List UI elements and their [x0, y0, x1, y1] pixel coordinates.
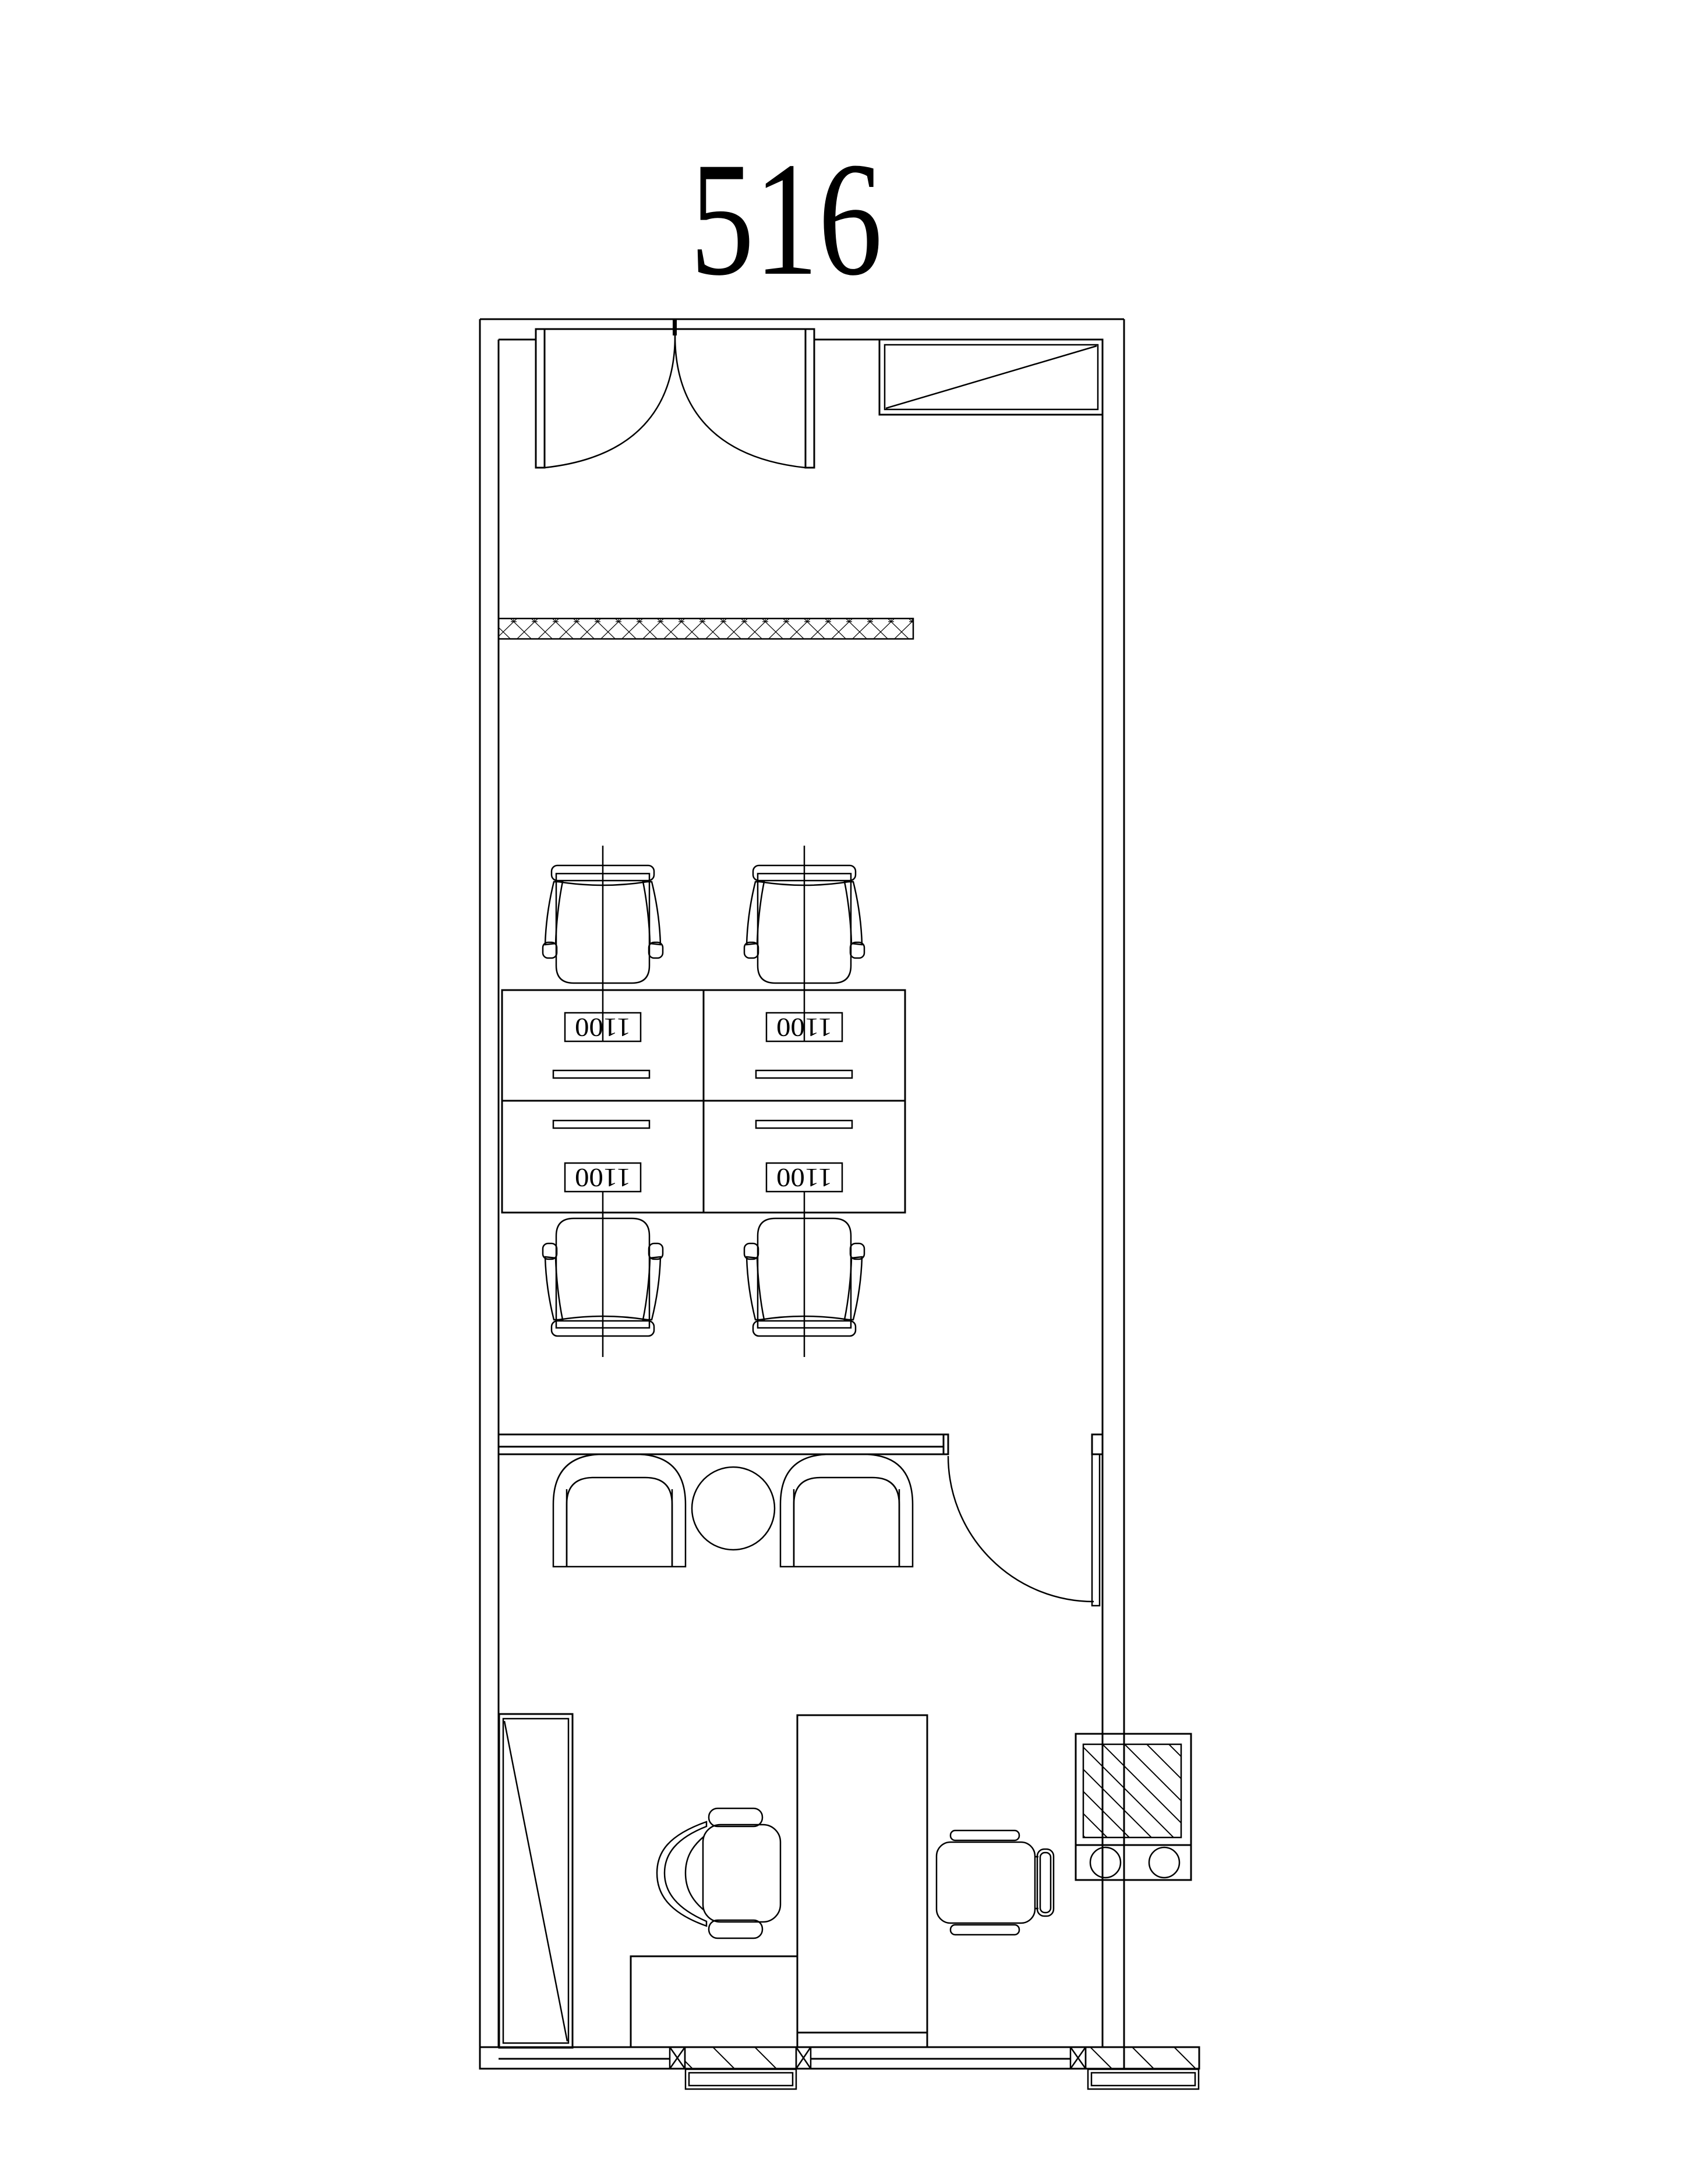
- wall-cabinet: [879, 340, 1103, 415]
- equipment-unit: [1076, 1734, 1191, 1880]
- door-swing-arc-icon: [948, 1456, 1094, 1602]
- partition-jamb-left: [944, 1434, 948, 1454]
- page-title: 516: [690, 128, 882, 309]
- storage-cabinet: [499, 1714, 573, 2048]
- door-leaf-swing-left-icon: [545, 335, 675, 468]
- partition-wall: [499, 1434, 1103, 1454]
- room-walls: [480, 319, 1124, 2069]
- sink-circle-icon: [1090, 1847, 1121, 1878]
- desk-label-text: 1100: [776, 1013, 832, 1042]
- partition-jamb-right: [1092, 1434, 1103, 1454]
- swivel-chair-icon: [657, 1808, 780, 1938]
- partition-door: [948, 1454, 1100, 1606]
- desk-grid-dividers: [502, 990, 905, 1213]
- insulation-strip: [499, 619, 913, 639]
- round-table-icon: [692, 1467, 775, 1550]
- desk-label: 1100: [565, 1163, 641, 1193]
- desk-label-text: 1100: [776, 1163, 832, 1193]
- window-mullion-icon: [670, 2047, 685, 2069]
- insulation-hatch: [499, 619, 913, 639]
- door-center-stop: [673, 319, 677, 335]
- window-wall: [480, 2047, 1199, 2089]
- tub-chair-icon: [780, 1454, 913, 1567]
- window-hatch-segment: [1086, 2047, 1199, 2069]
- entry-double-door: [536, 319, 814, 468]
- left-wall: [480, 319, 499, 2069]
- reception-desk: [631, 1956, 797, 2047]
- treatment-chair-icon: [937, 1830, 1054, 1935]
- window-mullion-icon: [1070, 2047, 1086, 2069]
- tall-counter-unit: [797, 1715, 927, 2047]
- desk-label-text: 1100: [575, 1013, 631, 1042]
- workstation-cluster: 1100 1100 1100 1100: [502, 846, 905, 1357]
- lounge-area: [553, 1454, 913, 1567]
- desk-label: 1100: [766, 1013, 842, 1042]
- wall-cabinet-diagonal: [886, 346, 1097, 408]
- window-sill: [686, 2069, 796, 2089]
- floor-plan-drawing: 516 1100 1100: [0, 0, 1689, 2184]
- window-hatch-segment: [685, 2047, 796, 2069]
- door-jamb-right: [805, 329, 814, 468]
- floor-plan-page: 516 1100 1100: [0, 0, 1689, 2184]
- desk-label: 1100: [565, 1013, 641, 1042]
- window-sill: [1088, 2069, 1199, 2089]
- door-leaf-swing-right-icon: [675, 335, 805, 468]
- door-jamb-left: [536, 329, 545, 468]
- desk-label-text: 1100: [575, 1163, 631, 1193]
- storage-cabinet-diagonal: [504, 1721, 567, 2041]
- sink-circle-icon: [1149, 1847, 1179, 1878]
- window-mullion-icon: [796, 2047, 811, 2069]
- partition-lines: [499, 1434, 948, 1454]
- desk-label: 1100: [766, 1163, 842, 1193]
- equipment-hatch: [1083, 1744, 1181, 1837]
- door-leaf: [1092, 1454, 1100, 1606]
- tub-chair-icon: [553, 1454, 686, 1567]
